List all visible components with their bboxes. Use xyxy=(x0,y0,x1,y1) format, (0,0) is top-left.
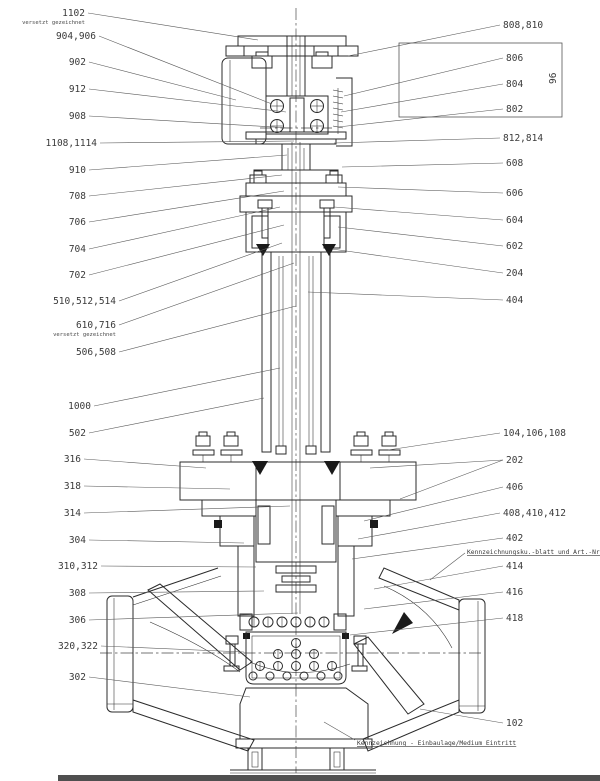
callout-812-814: 812,814 xyxy=(503,133,543,144)
leader-line xyxy=(364,487,503,521)
leader-line xyxy=(358,513,500,539)
callout-804: 804 xyxy=(506,79,523,90)
leader-line xyxy=(89,225,284,275)
callout-306: 306 xyxy=(69,615,86,626)
leader-line xyxy=(308,292,503,300)
flow-direction-arrow xyxy=(392,612,413,634)
callout-502: 502 xyxy=(69,428,86,439)
leader-line xyxy=(338,109,503,127)
leader-line xyxy=(420,709,503,723)
leader-line xyxy=(400,460,503,499)
leader-line xyxy=(84,459,206,468)
callout-802: 802 xyxy=(506,104,523,115)
callout-408-410-412: 408,410,412 xyxy=(503,508,566,519)
callout-902: 902 xyxy=(69,57,86,68)
leader-line xyxy=(89,540,244,543)
leader-line xyxy=(348,25,500,56)
callout-608: 608 xyxy=(506,158,523,169)
callout-602: 602 xyxy=(506,241,523,252)
callout-316: 316 xyxy=(64,454,81,465)
callout-104-106-108: 104,106,108 xyxy=(503,428,566,439)
callout-606: 606 xyxy=(506,188,523,199)
cage-holes xyxy=(249,639,342,681)
leader-line xyxy=(84,486,230,489)
callout-320-322: 320,322 xyxy=(58,641,98,652)
leader-line xyxy=(350,618,503,635)
leader-line xyxy=(89,677,250,697)
callout-604: 604 xyxy=(506,215,523,226)
leader-line xyxy=(388,433,500,450)
leader-line xyxy=(341,84,503,112)
leader-line xyxy=(89,613,298,620)
callout-310-312: 310,312 xyxy=(58,561,98,572)
leader-line xyxy=(338,187,503,193)
pipe-flange-left xyxy=(107,596,133,712)
callout-506-508: 506,508 xyxy=(76,347,116,358)
callout-kennzeichnungsku-blatt-und-art-nr: Kennzeichnungsku.-blatt und Art.-Nr. xyxy=(467,549,600,556)
callout-908: 908 xyxy=(69,111,86,122)
callout-704: 704 xyxy=(69,244,86,255)
leader-line xyxy=(370,460,503,468)
leader-line xyxy=(344,58,503,96)
leader-line xyxy=(101,646,244,652)
callout-418: 418 xyxy=(506,613,523,624)
leader-line xyxy=(89,398,264,433)
leader-line xyxy=(334,138,500,143)
callout-904-906: 904,906 xyxy=(56,31,96,42)
callout-subnote: versetzt gezeichnet xyxy=(53,332,116,338)
packing-flange xyxy=(180,432,416,500)
leader-line xyxy=(89,116,290,128)
callout-1000: 1000 xyxy=(68,401,91,412)
leader-line xyxy=(324,722,355,740)
callout-910: 910 xyxy=(69,165,86,176)
callout-318: 318 xyxy=(64,481,81,492)
callout-304: 304 xyxy=(69,535,86,546)
callout-414: 414 xyxy=(506,561,523,572)
leader-line xyxy=(332,249,503,273)
callout-702: 702 xyxy=(69,270,86,281)
callout-308: 308 xyxy=(69,588,86,599)
leader-line xyxy=(119,306,296,352)
sheet-edge-bar xyxy=(58,775,600,781)
callout-314: 314 xyxy=(64,508,81,519)
callout-302: 302 xyxy=(69,672,86,683)
actuator-assembly xyxy=(222,36,358,146)
leader-line xyxy=(88,13,258,40)
leader-line xyxy=(334,207,503,220)
leader-line xyxy=(89,89,286,112)
callout-406: 406 xyxy=(506,482,523,493)
callout-806: 806 xyxy=(506,53,523,64)
spring xyxy=(333,88,343,134)
leader-line xyxy=(89,175,282,196)
leader-line xyxy=(89,155,287,170)
leader-line xyxy=(119,263,294,325)
detail-box: 96 xyxy=(399,43,562,117)
gland-bolt-circles xyxy=(249,617,329,627)
callout-416: 416 xyxy=(506,587,523,598)
callout-708: 708 xyxy=(69,191,86,202)
plug-cage xyxy=(224,632,367,684)
leader-line xyxy=(89,207,280,249)
leader-line xyxy=(342,163,503,167)
detail-box-side-label: 96 xyxy=(548,72,559,84)
callout-204: 204 xyxy=(506,268,523,279)
valve-sectional-drawing: 96 xyxy=(0,0,600,781)
callout-610-716: 610,716 xyxy=(76,320,116,331)
leader-line xyxy=(364,592,503,609)
callout-912: 912 xyxy=(69,84,86,95)
leader-line xyxy=(84,506,290,513)
callout-402: 402 xyxy=(506,533,523,544)
callout-1108-1114: 1108,1114 xyxy=(46,138,98,149)
callout-1102: 1102 xyxy=(62,8,85,19)
callout-subnote: versetzt gezeichnet xyxy=(22,20,85,26)
callout-404: 404 xyxy=(506,295,523,306)
engineering-drawing: 96 xyxy=(0,0,600,781)
leader-line xyxy=(101,566,256,567)
callout-808-810: 808,810 xyxy=(503,20,543,31)
callout-102: 102 xyxy=(506,718,523,729)
callout-706: 706 xyxy=(69,217,86,228)
leader-line xyxy=(338,227,503,246)
callout-510-512-514: 510,512,514 xyxy=(53,296,116,307)
leader-line xyxy=(119,243,282,301)
leader-line xyxy=(89,191,284,222)
callout-kennzeichnung-einbaulage-medium-eintritt: Kennzeichnung - Einbaulage/Medium Eintri… xyxy=(357,740,516,747)
pipe-flange-right xyxy=(459,599,485,713)
leader-line xyxy=(374,566,503,589)
callout-202: 202 xyxy=(506,455,523,466)
